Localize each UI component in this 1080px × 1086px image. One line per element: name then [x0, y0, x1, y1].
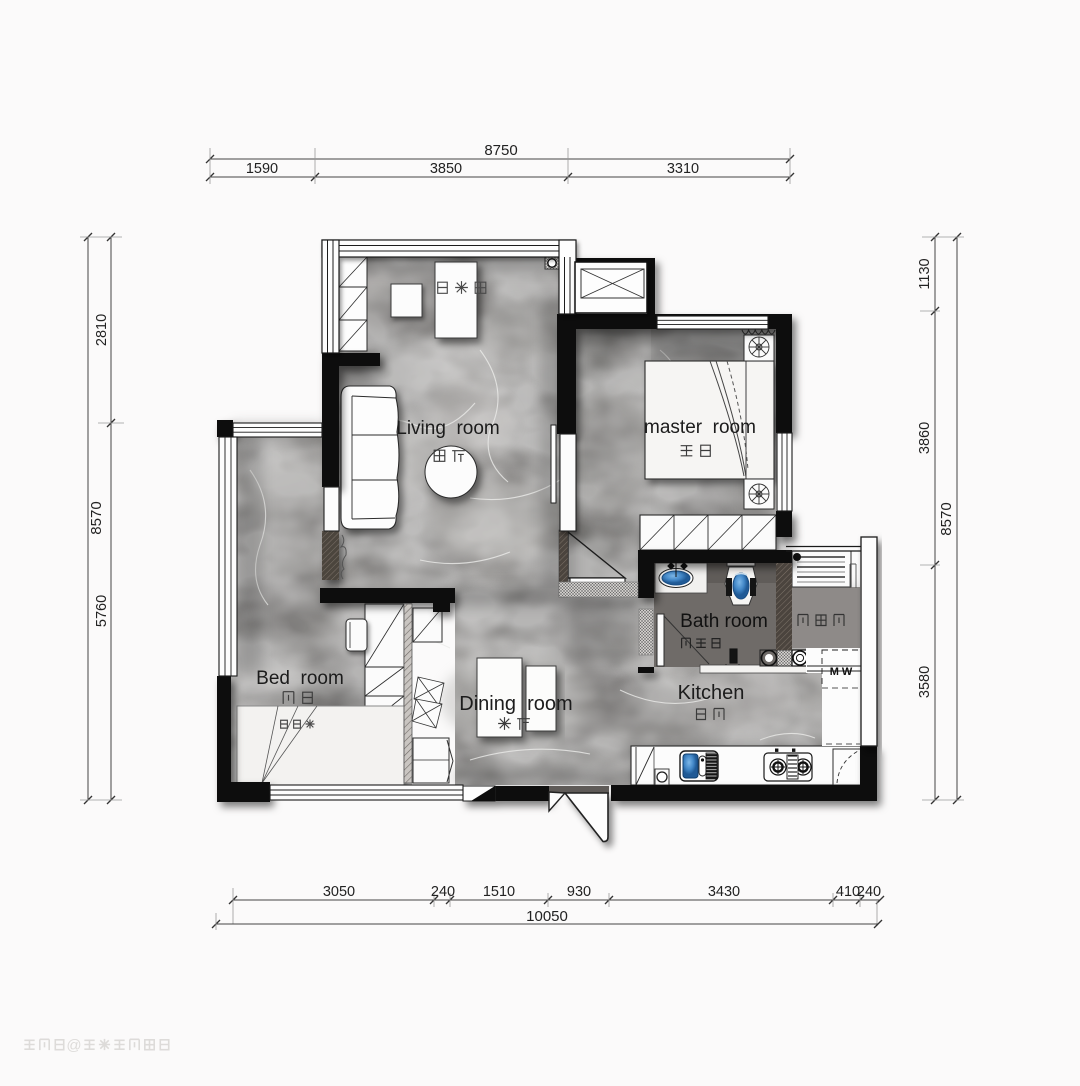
- svg-text:3850: 3850: [430, 161, 462, 177]
- svg-text:Kitchen: Kitchen: [678, 682, 745, 704]
- svg-text:Bath room: Bath room: [680, 611, 768, 632]
- svg-text:M W: M W: [830, 666, 853, 678]
- svg-text:3430: 3430: [708, 884, 740, 900]
- svg-text:@: @: [66, 1037, 81, 1054]
- svg-text:Living room: Living room: [396, 418, 500, 439]
- svg-text:Bed room: Bed room: [256, 668, 344, 689]
- svg-text:3580: 3580: [917, 666, 933, 698]
- svg-text:8570: 8570: [88, 501, 105, 534]
- svg-text:1510: 1510: [483, 884, 515, 900]
- svg-text:3050: 3050: [323, 884, 355, 900]
- svg-text:master room: master room: [644, 417, 756, 438]
- svg-text:1590: 1590: [246, 161, 278, 177]
- svg-text:2810: 2810: [94, 314, 110, 346]
- svg-text:3860: 3860: [917, 422, 933, 454]
- svg-text:930: 930: [567, 884, 591, 900]
- svg-text:Dining room: Dining room: [459, 693, 572, 715]
- svg-text:1130: 1130: [917, 258, 933, 289]
- svg-text:3310: 3310: [667, 161, 699, 177]
- svg-text:8750: 8750: [484, 142, 517, 159]
- svg-text:5760: 5760: [94, 595, 110, 627]
- svg-text:8570: 8570: [938, 502, 955, 535]
- svg-text:240: 240: [431, 884, 455, 900]
- svg-text:10050: 10050: [526, 908, 568, 925]
- svg-text:240: 240: [857, 884, 881, 900]
